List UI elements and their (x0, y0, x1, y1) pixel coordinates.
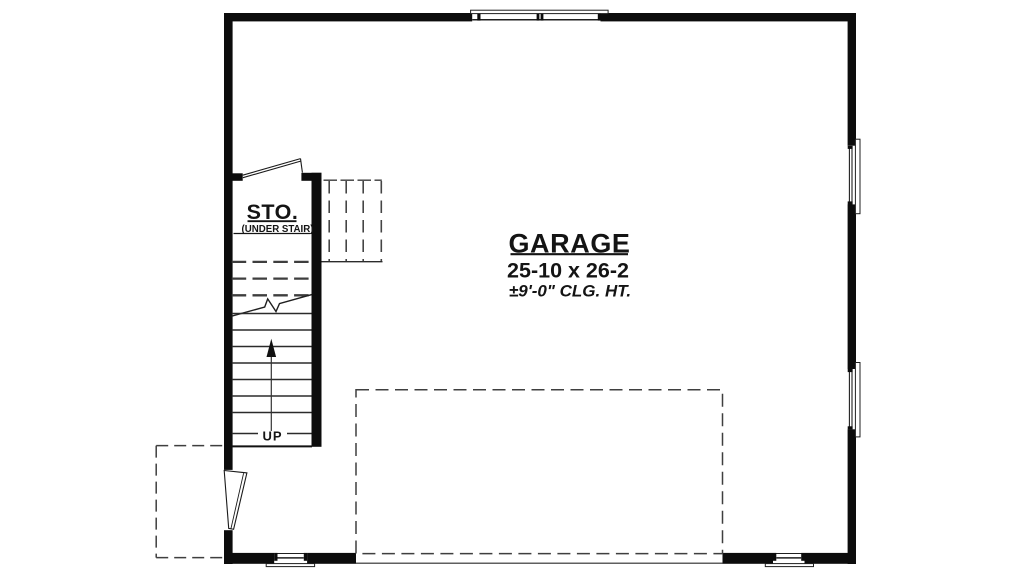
svg-text:25-10 x 26-2: 25-10 x 26-2 (507, 259, 629, 283)
svg-text:UP: UP (262, 429, 282, 444)
svg-text:±9'-0" CLG. HT.: ±9'-0" CLG. HT. (509, 281, 631, 300)
